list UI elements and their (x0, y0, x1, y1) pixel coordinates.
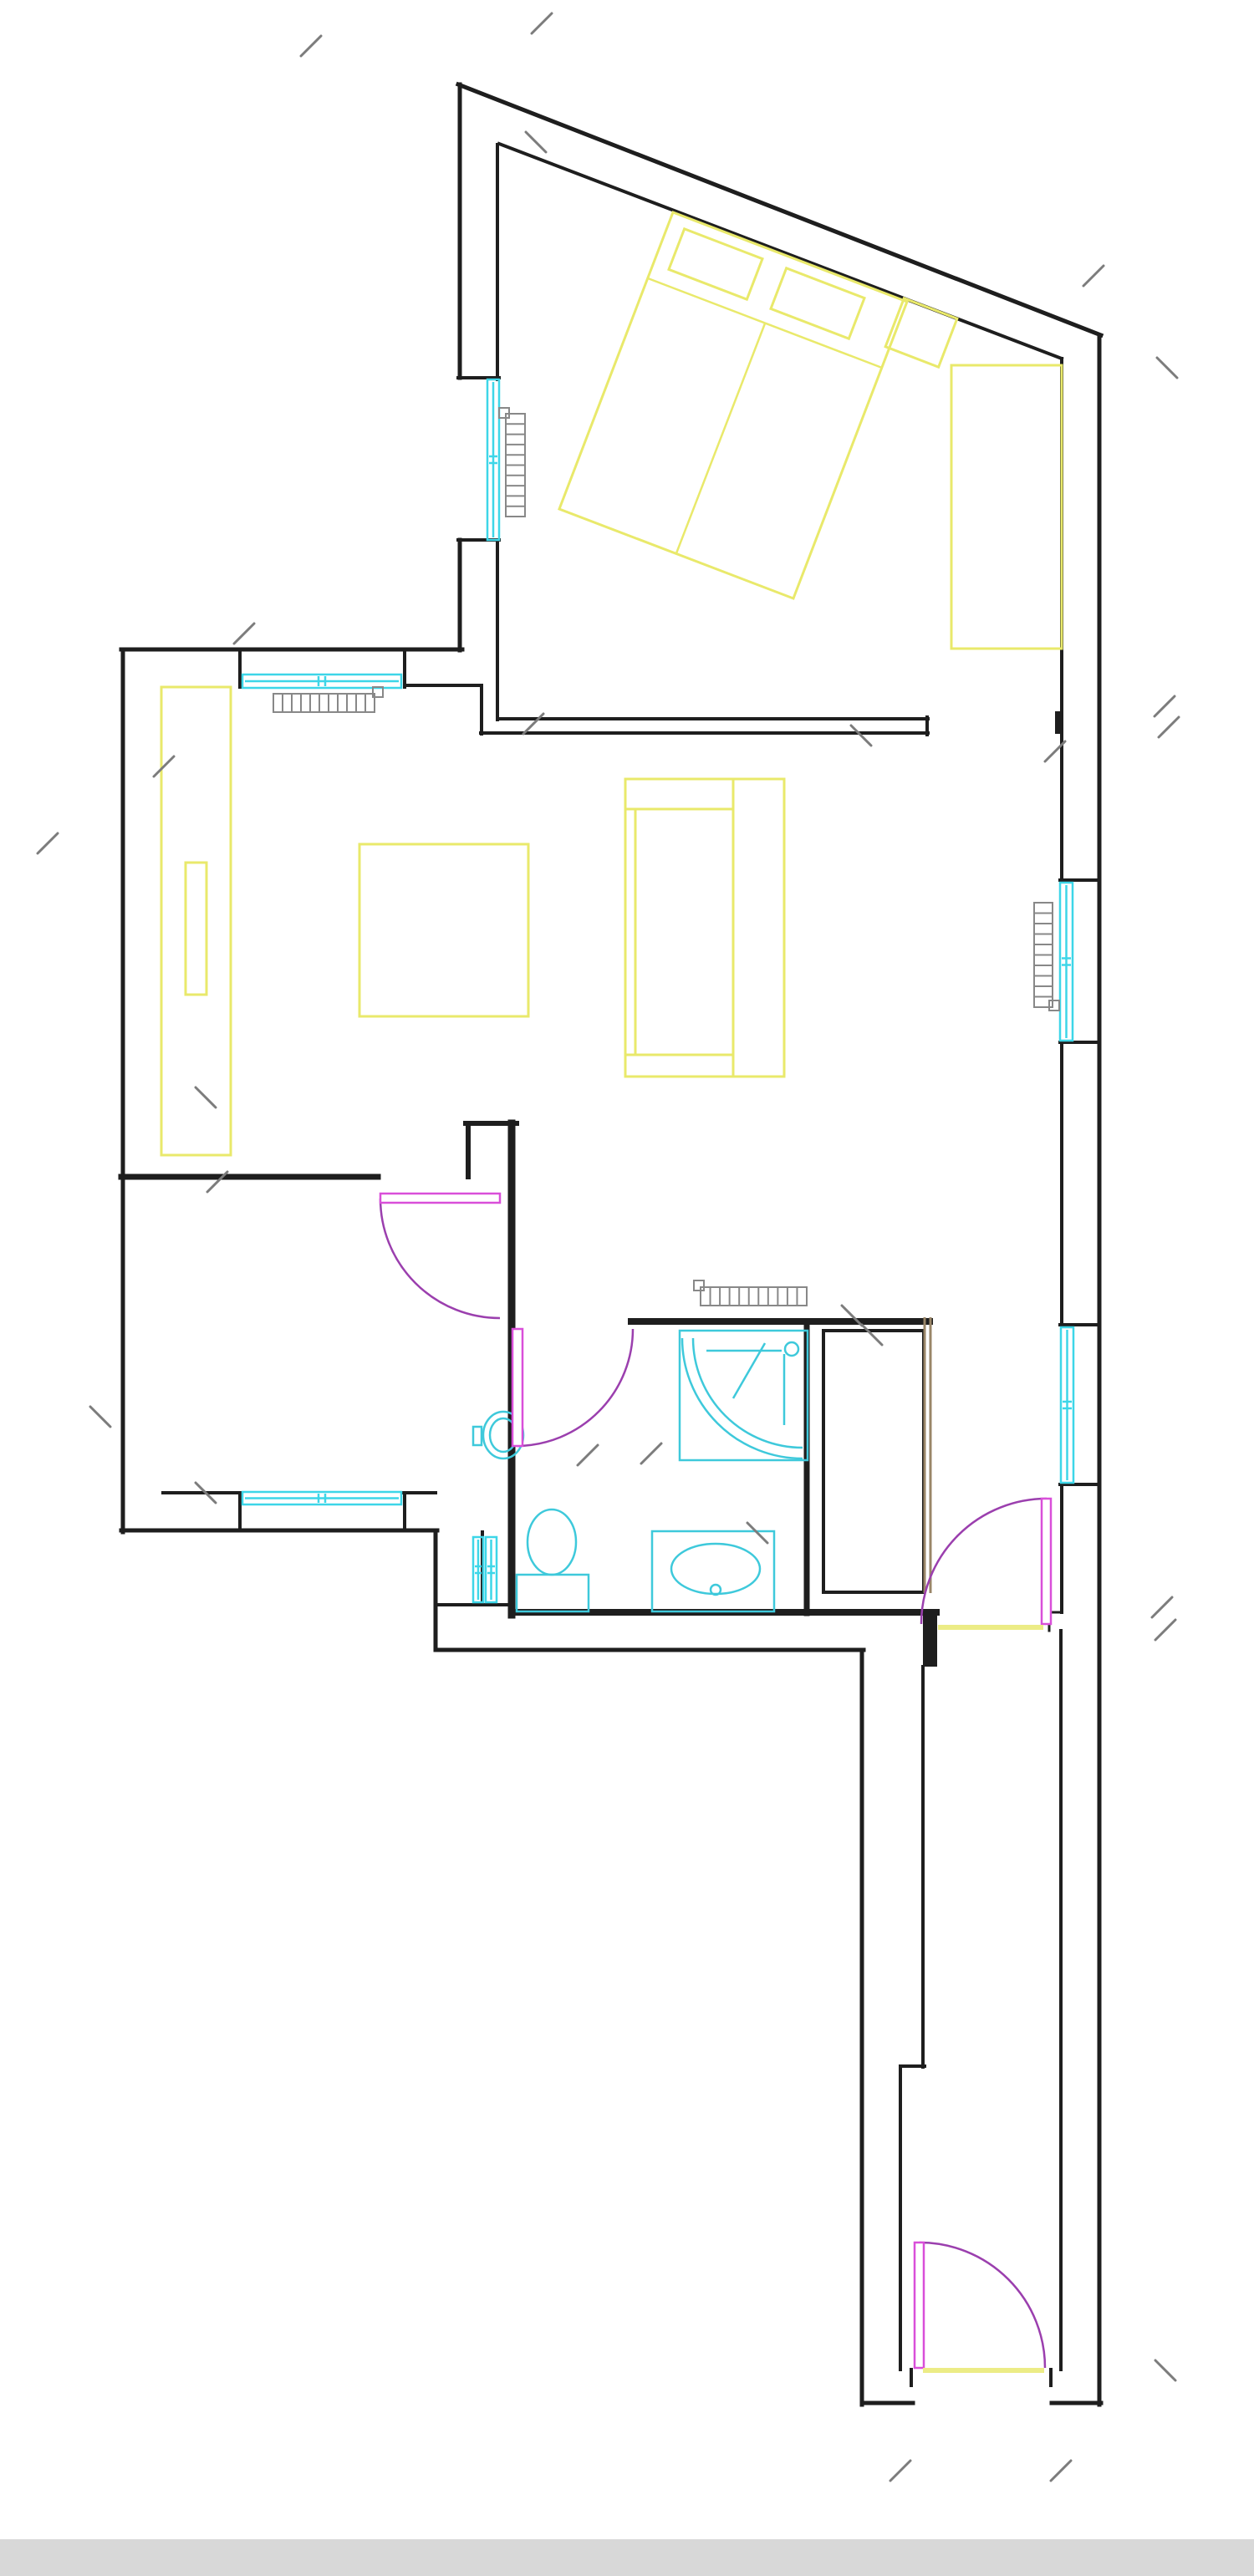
screenshot-footer-bar (0, 2539, 1254, 2576)
door-hall-corridor-leaf (1042, 1499, 1051, 1624)
floor-plan-drawing (0, 0, 1254, 2576)
floor-plan-page: Apartment floor plan (CAD drawing) (0, 0, 1254, 2576)
canvas-background (0, 0, 1254, 2576)
wall-stub-hall-door (923, 1610, 937, 1667)
wall-notch-bedroom-door (1055, 711, 1063, 734)
door-bathroom-leaf (512, 1329, 522, 1446)
door-entrance-leaf (915, 2243, 924, 2368)
door-small-room-leaf (380, 1194, 500, 1203)
